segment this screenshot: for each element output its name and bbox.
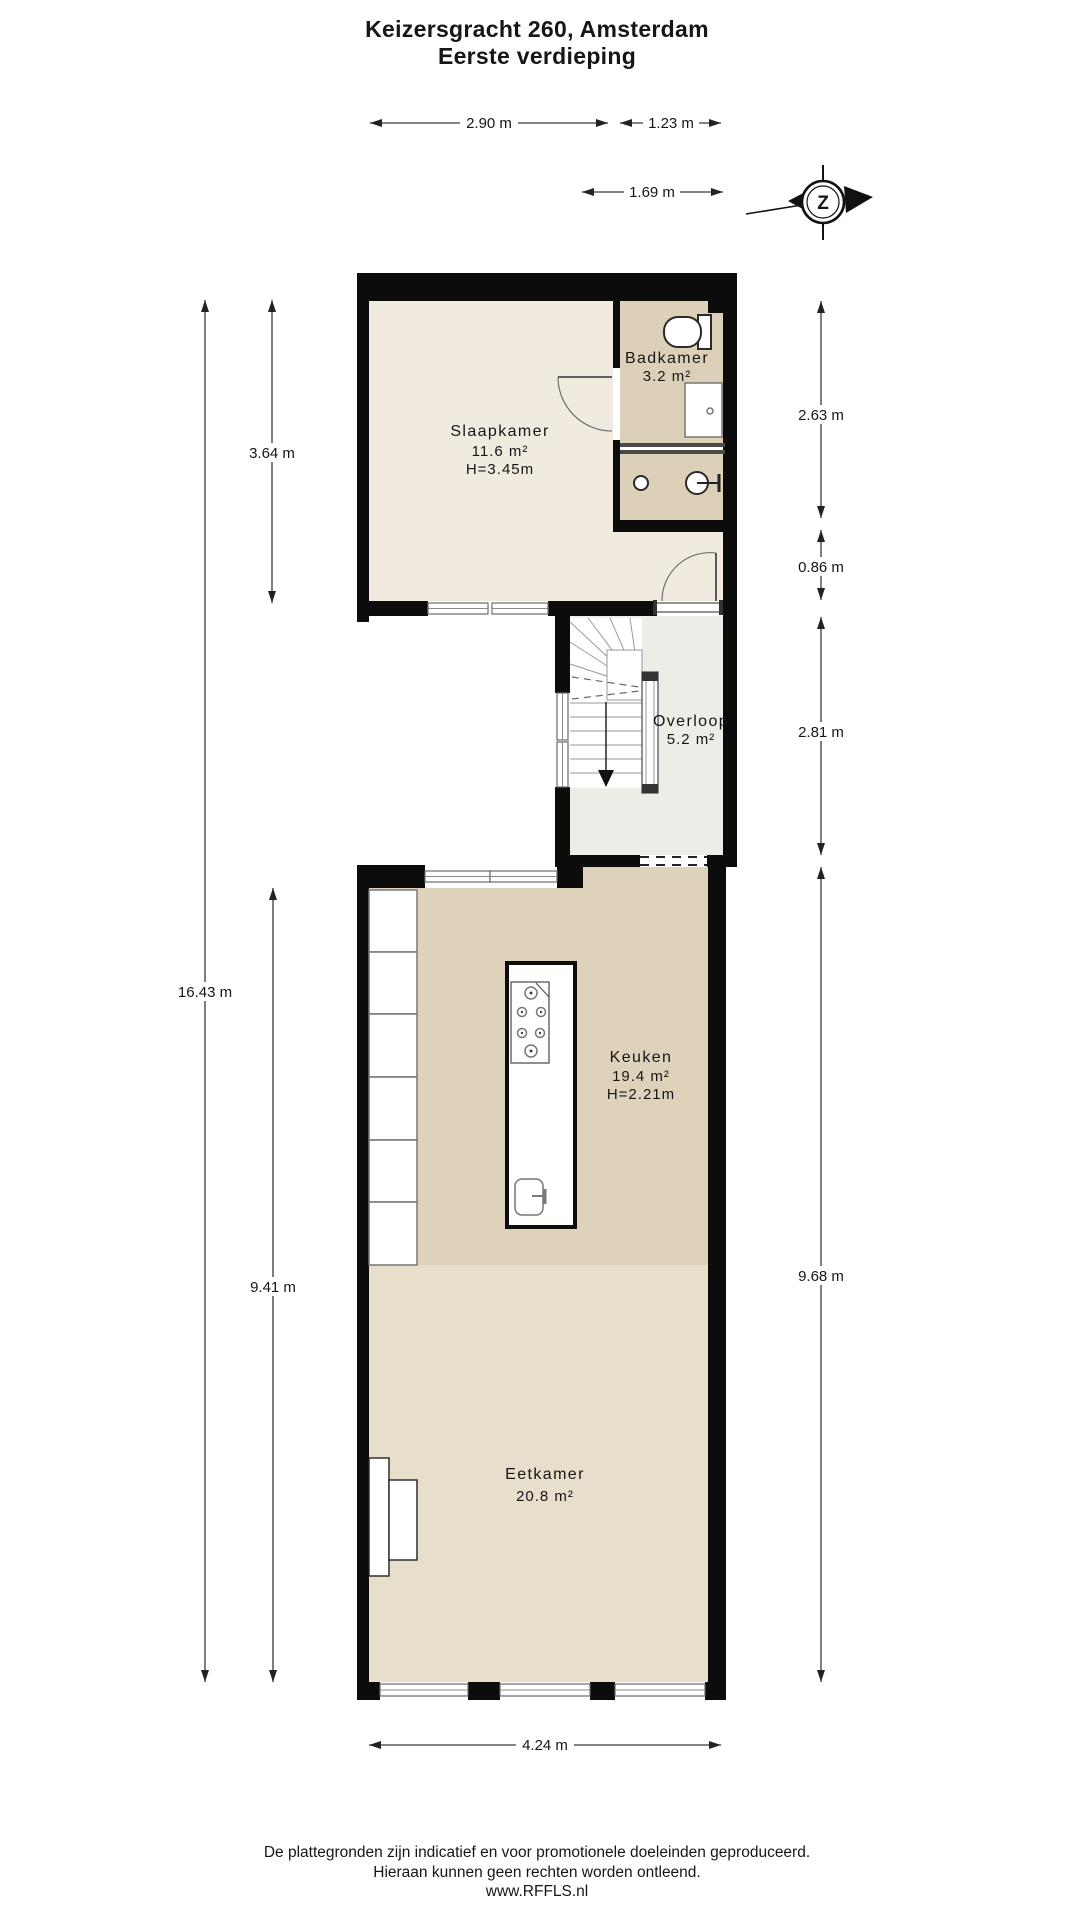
footer-website: www.RFFLS.nl [485, 1883, 589, 1900]
partition-cap-right [719, 600, 723, 615]
svg-text:4.24 m: 4.24 m [522, 1737, 568, 1754]
wall-washroom-bottom [613, 520, 725, 532]
compass-letter: Z [817, 193, 829, 214]
kitchen-cabinets [369, 890, 417, 1265]
wall-left-upper [357, 273, 369, 622]
eetkamer-label: Eetkamer [505, 1466, 585, 1483]
window-keuken-2 [490, 871, 557, 882]
keuken-ceiling: H=2.21m [607, 1086, 675, 1103]
wall-keuken-step [557, 865, 583, 888]
keuken-label: Keuken [610, 1049, 673, 1066]
svg-text:9.68 m: 9.68 m [798, 1268, 844, 1285]
sliding-divider-top [620, 443, 725, 447]
slaapkamer-area: 11.6 m² [472, 443, 529, 460]
stove-icon [511, 982, 549, 1063]
svg-text:1.69 m: 1.69 m [629, 184, 675, 201]
floorplan-page: Keizersgracht 260, Amsterdam Eerste verd… [0, 0, 1080, 1920]
wall-stairwell-upper [555, 616, 570, 693]
wall-right-lower [708, 867, 726, 1700]
keuken-floor-upper [583, 867, 708, 888]
svg-text:1.23 m: 1.23 m [648, 115, 694, 132]
stair-railing [642, 672, 658, 793]
dim-lower-height-left: 9.41 m [244, 888, 302, 1682]
dim-badkamer-height-right: 2.63 m [792, 301, 850, 518]
wall-divider-upper [613, 301, 620, 368]
wall-bottom-pier3 [590, 1682, 615, 1700]
wall-slaapkamer-bottom-left [357, 601, 428, 616]
slaapkamer-nook-floor [613, 532, 723, 601]
sliding-divider-bottom [620, 450, 725, 454]
slaapkamer-label: Slaapkamer [450, 423, 549, 440]
toilet-icon [664, 315, 711, 349]
window-eetkamer-1 [380, 1684, 468, 1696]
wall-left-lower [357, 865, 369, 1700]
dim-hall-height-right: 0.86 m [792, 530, 850, 600]
wall-divider-lower [613, 440, 620, 532]
shower-icon [685, 383, 722, 437]
window-eetkamer-2 [500, 1684, 590, 1696]
page-title-line2: Eerste verdieping [438, 43, 636, 69]
slaapkamer-ceiling: H=3.45m [466, 461, 534, 478]
svg-text:3.64 m: 3.64 m [249, 445, 295, 462]
dim-eetkamer-width-bottom: 4.24 m [369, 1735, 721, 1754]
wall-right-upper [723, 273, 737, 867]
svg-text:2.81 m: 2.81 m [798, 724, 844, 741]
window-slaapkamer-south-1 [428, 603, 488, 614]
window-stairwell-2 [557, 742, 568, 787]
window-stairwell-1 [557, 693, 568, 740]
wall-slaapkamer-bottom-right [548, 601, 657, 616]
wall-niche-cap [708, 301, 723, 313]
dim-lower-height-right: 9.68 m [792, 867, 850, 1682]
dim-overloop-width: 1.69 m [582, 182, 723, 201]
dim-total-height-left: 16.43 m [172, 300, 238, 1682]
page-title-line1: Keizersgracht 260, Amsterdam [365, 16, 709, 42]
dim-badkamer-width: 1.23 m [620, 113, 721, 132]
footer-line2: Hieraan kunnen geen rechten worden ontle… [373, 1864, 700, 1881]
dim-slaapkamer-height-left: 3.64 m [243, 300, 301, 603]
dim-slaapkamer-width: 2.90 m [370, 113, 608, 132]
footer-line1: De plattegronden zijn indicatief en voor… [264, 1844, 810, 1861]
kitchen-island [507, 963, 575, 1227]
dim-overloop-height-right: 2.81 m [792, 617, 850, 855]
wall-bottom-pier1 [357, 1682, 380, 1700]
window-eetkamer-3 [615, 1684, 705, 1696]
svg-text:16.43 m: 16.43 m [178, 984, 232, 1001]
window-slaapkamer-south-2 [492, 603, 548, 614]
svg-text:2.63 m: 2.63 m [798, 407, 844, 424]
floor-plan-canvas: Keizersgracht 260, Amsterdam Eerste verd… [0, 0, 1080, 1920]
keuken-area: 19.4 m² [612, 1068, 670, 1085]
overloop-area: 5.2 m² [667, 731, 716, 748]
badkamer-label: Badkamer [625, 350, 709, 367]
wall-bottom-pier4 [705, 1682, 726, 1700]
svg-text:0.86 m: 0.86 m [798, 559, 844, 576]
wall-overloop-bottom-pier [707, 855, 726, 867]
svg-text:2.90 m: 2.90 m [466, 115, 512, 132]
window-keuken-1 [425, 871, 490, 882]
wall-bottom-pier2 [468, 1682, 500, 1700]
sink-icon [515, 1179, 545, 1215]
eetkamer-area: 20.8 m² [516, 1488, 574, 1505]
compass-north-icon: Z [746, 165, 873, 240]
svg-text:9.41 m: 9.41 m [250, 1279, 296, 1296]
partition-cap-left [653, 600, 657, 615]
overloop-label: Overloop [653, 713, 729, 730]
footer-disclaimer: De plattegronden zijn indicatief en voor… [264, 1844, 810, 1900]
badkamer-area: 3.2 m² [643, 368, 692, 385]
wall-top [357, 273, 737, 301]
